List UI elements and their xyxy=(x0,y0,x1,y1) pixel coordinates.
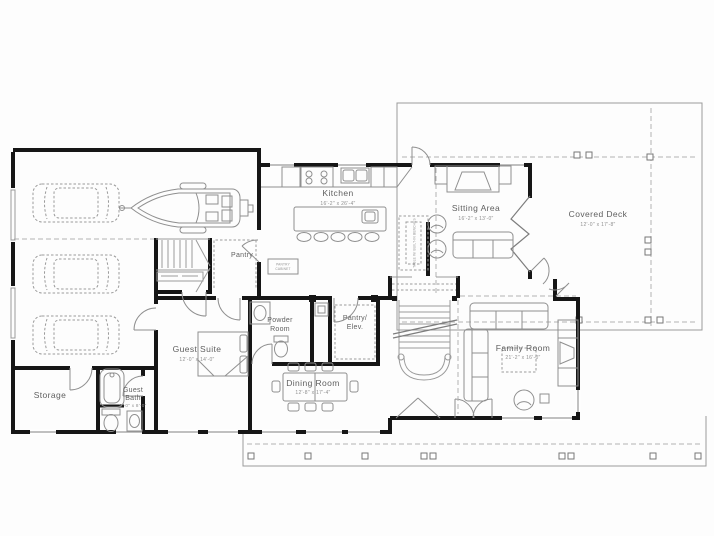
garage-car-2 xyxy=(33,255,119,293)
banquette-label: TABLE W/ BUILT-IN BENCHES xyxy=(413,218,417,268)
kitchen-island xyxy=(294,207,386,242)
dining-room-label: Dining Room xyxy=(286,378,340,388)
dining-room-dims: 12'-8" x 17'-4" xyxy=(295,390,330,396)
floor-plan-sheet: PANTRY CABINET TABLE W/ BUILT-IN BENCHES xyxy=(0,0,714,536)
pantry-cabinet-label-line2: CABINET xyxy=(275,267,290,271)
guest-suite-bed xyxy=(198,332,248,376)
pantry-cabinet-box: PANTRY CABINET xyxy=(268,259,298,274)
covered-deck-dims: 12'-0" x 17'-8" xyxy=(580,222,615,228)
guest-bath-label-line2: Bath xyxy=(125,395,141,402)
powder-room-label-line1: Powder xyxy=(267,317,293,324)
sitting-area-dims: 16'-2" x 13'-0" xyxy=(458,216,493,222)
family-room-dims: 21'-2" x 16'-0" xyxy=(505,355,540,361)
guest-suite-label: Guest Suite xyxy=(173,344,222,354)
family-room-label: Family Room xyxy=(496,343,550,353)
pantry-cabinet-label-line1: PANTRY xyxy=(276,263,291,267)
front-porch-area xyxy=(243,416,706,466)
boat-on-trailer xyxy=(120,183,254,233)
garage-car-1 xyxy=(33,184,119,222)
kitchen-dims: 16'-2" x 26'-4" xyxy=(320,201,355,207)
kitchen-label: Kitchen xyxy=(322,188,353,198)
pantry-label: Pantry xyxy=(231,252,253,259)
back-stairs xyxy=(156,239,210,292)
storage-label: Storage xyxy=(34,390,67,400)
deck-posts xyxy=(574,152,663,323)
pantry-elev-label-line2: Elev. xyxy=(347,324,364,331)
powder-room-label-line2: Room xyxy=(270,326,290,333)
floor-plan-drawing: PANTRY CABINET TABLE W/ BUILT-IN BENCHES xyxy=(0,0,714,536)
closet-fixture xyxy=(315,303,328,316)
guest-bath-label-line1: Guest xyxy=(123,387,143,394)
kitchen-counters xyxy=(261,167,412,187)
guest-bath-dims: 9'-0" x 8'-0" xyxy=(119,403,146,408)
garage-car-3 xyxy=(33,316,119,354)
covered-deck-label: Covered Deck xyxy=(569,209,628,219)
interior-walls xyxy=(13,167,458,434)
main-staircase xyxy=(390,277,458,380)
fireplace xyxy=(435,166,511,192)
toilet xyxy=(104,415,118,432)
open-wall-zigzag xyxy=(511,196,530,272)
elevator-shaft xyxy=(335,305,375,359)
banquette-table: TABLE W/ BUILT-IN BENCHES xyxy=(399,216,428,270)
sitting-area-label: Sitting Area xyxy=(452,203,500,213)
pantry-shelves xyxy=(214,240,256,288)
porch-posts xyxy=(248,453,701,459)
guest-suite-dims: 12'-0" x 14'-0" xyxy=(179,357,214,363)
pantry-elev-label-line1: Pantry/ xyxy=(343,315,367,322)
